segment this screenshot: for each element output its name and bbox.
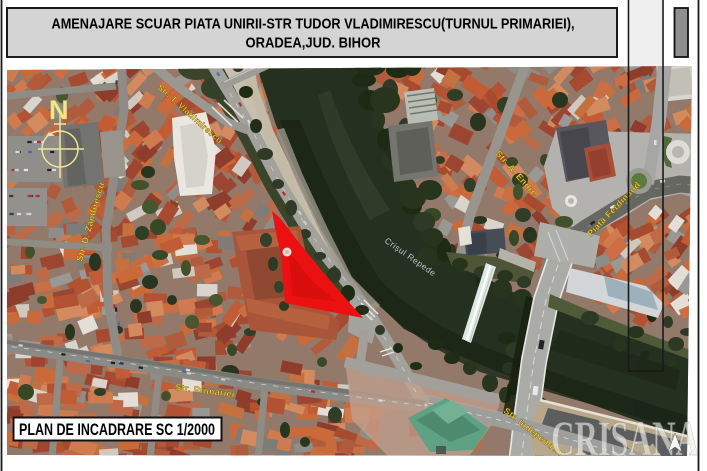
svg-text:ORADEA,JUD. BIHOR: ORADEA,JUD. BIHOR [246, 35, 381, 52]
svg-text:AMENAJARE SCUAR PIATA UNIRII-S: AMENAJARE SCUAR PIATA UNIRII-STR TUDOR V… [52, 16, 575, 33]
svg-text:N: N [49, 95, 69, 125]
svg-text:PLAN DE INCADRARE SC 1/2000: PLAN DE INCADRARE SC 1/2000 [19, 420, 215, 439]
